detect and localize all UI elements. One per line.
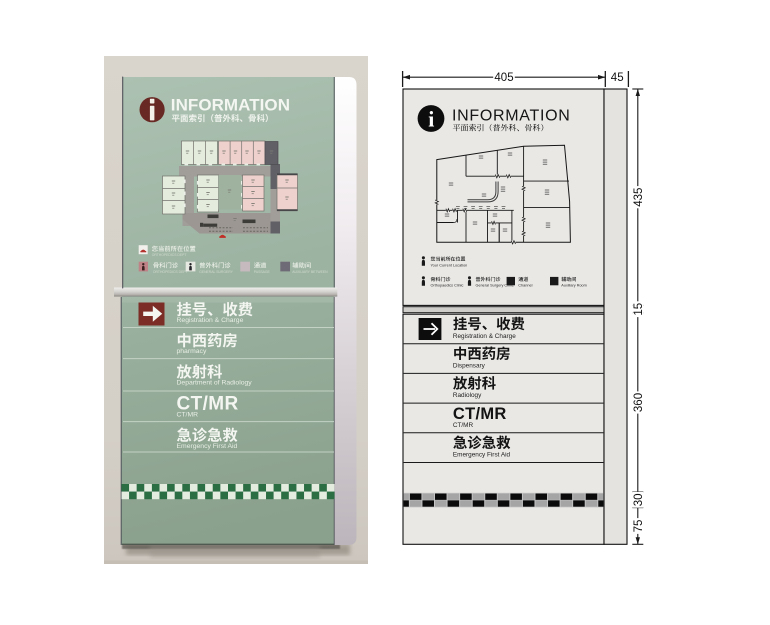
svg-text:Registration & Charge: Registration & Charge <box>453 333 516 340</box>
svg-text:Auxiliary Room: Auxiliary Room <box>561 284 587 288</box>
svg-text:Dispensary: Dispensary <box>453 363 486 370</box>
svg-text:i: i <box>428 106 434 131</box>
svg-text:30: 30 <box>633 493 645 506</box>
svg-text:Your Current Location: Your Current Location <box>431 263 468 267</box>
svg-text:45: 45 <box>611 72 624 84</box>
svg-text:360: 360 <box>633 393 645 412</box>
svg-text:GENERAL SURGERY: GENERAL SURGERY <box>199 270 233 274</box>
svg-text:PASSAGE: PASSAGE <box>254 270 271 274</box>
svg-text:ORTHOPEDICS DEPT: ORTHOPEDICS DEPT <box>153 270 188 274</box>
svg-text:CT/MR: CT/MR <box>453 405 507 423</box>
svg-text:Emergency First Aid: Emergency First Aid <box>453 452 511 459</box>
svg-text:Department of Radiology: Department of Radiology <box>177 380 253 387</box>
svg-text:75: 75 <box>633 520 645 533</box>
svg-text:pharmacy: pharmacy <box>177 348 207 355</box>
svg-text:INFORMATION: INFORMATION <box>171 96 290 115</box>
svg-text:15: 15 <box>633 303 645 316</box>
svg-text:Channel: Channel <box>518 284 532 288</box>
svg-text:CT/MR: CT/MR <box>177 411 199 418</box>
svg-text:435: 435 <box>633 188 645 207</box>
svg-text:CT/MR: CT/MR <box>453 422 474 429</box>
svg-text:405: 405 <box>494 72 513 84</box>
svg-text:Orthopaedics Clinic: Orthopaedics Clinic <box>431 284 464 288</box>
svg-text:ORTHOPEDICS DEPT: ORTHOPEDICS DEPT <box>152 253 187 257</box>
svg-text:Emergency First Aid: Emergency First Aid <box>177 443 238 450</box>
svg-text:AUXILIARY BETWEEN: AUXILIARY BETWEEN <box>292 270 328 274</box>
svg-text:Registration & Charge: Registration & Charge <box>177 317 244 324</box>
svg-text:Radiology: Radiology <box>453 392 482 399</box>
svg-text:INFORMATION: INFORMATION <box>452 107 571 124</box>
